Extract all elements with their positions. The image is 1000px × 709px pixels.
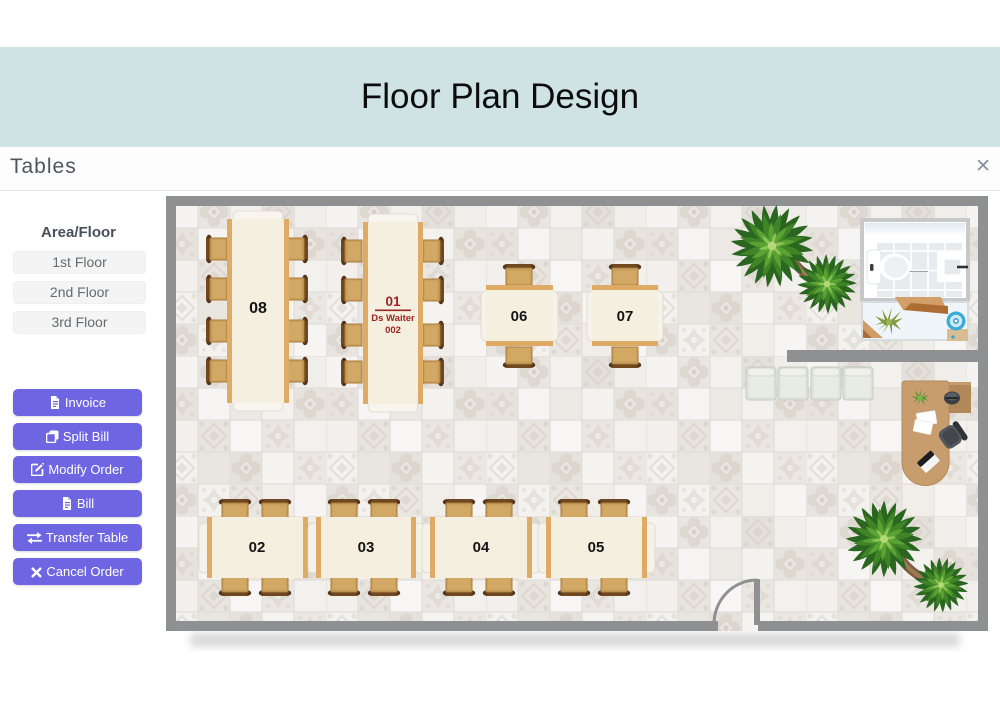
svg-text:002: 002 bbox=[385, 325, 401, 336]
svg-text:01: 01 bbox=[385, 294, 401, 309]
svg-text:07: 07 bbox=[617, 308, 634, 325]
svg-text:08: 08 bbox=[249, 300, 267, 317]
svg-text:03: 03 bbox=[358, 539, 375, 556]
svg-text:05: 05 bbox=[588, 539, 605, 556]
svg-text:Ds Waiter: Ds Waiter bbox=[371, 313, 415, 324]
svg-text:04: 04 bbox=[473, 539, 490, 556]
svg-text:06: 06 bbox=[511, 308, 528, 325]
svg-text:02: 02 bbox=[249, 539, 266, 556]
